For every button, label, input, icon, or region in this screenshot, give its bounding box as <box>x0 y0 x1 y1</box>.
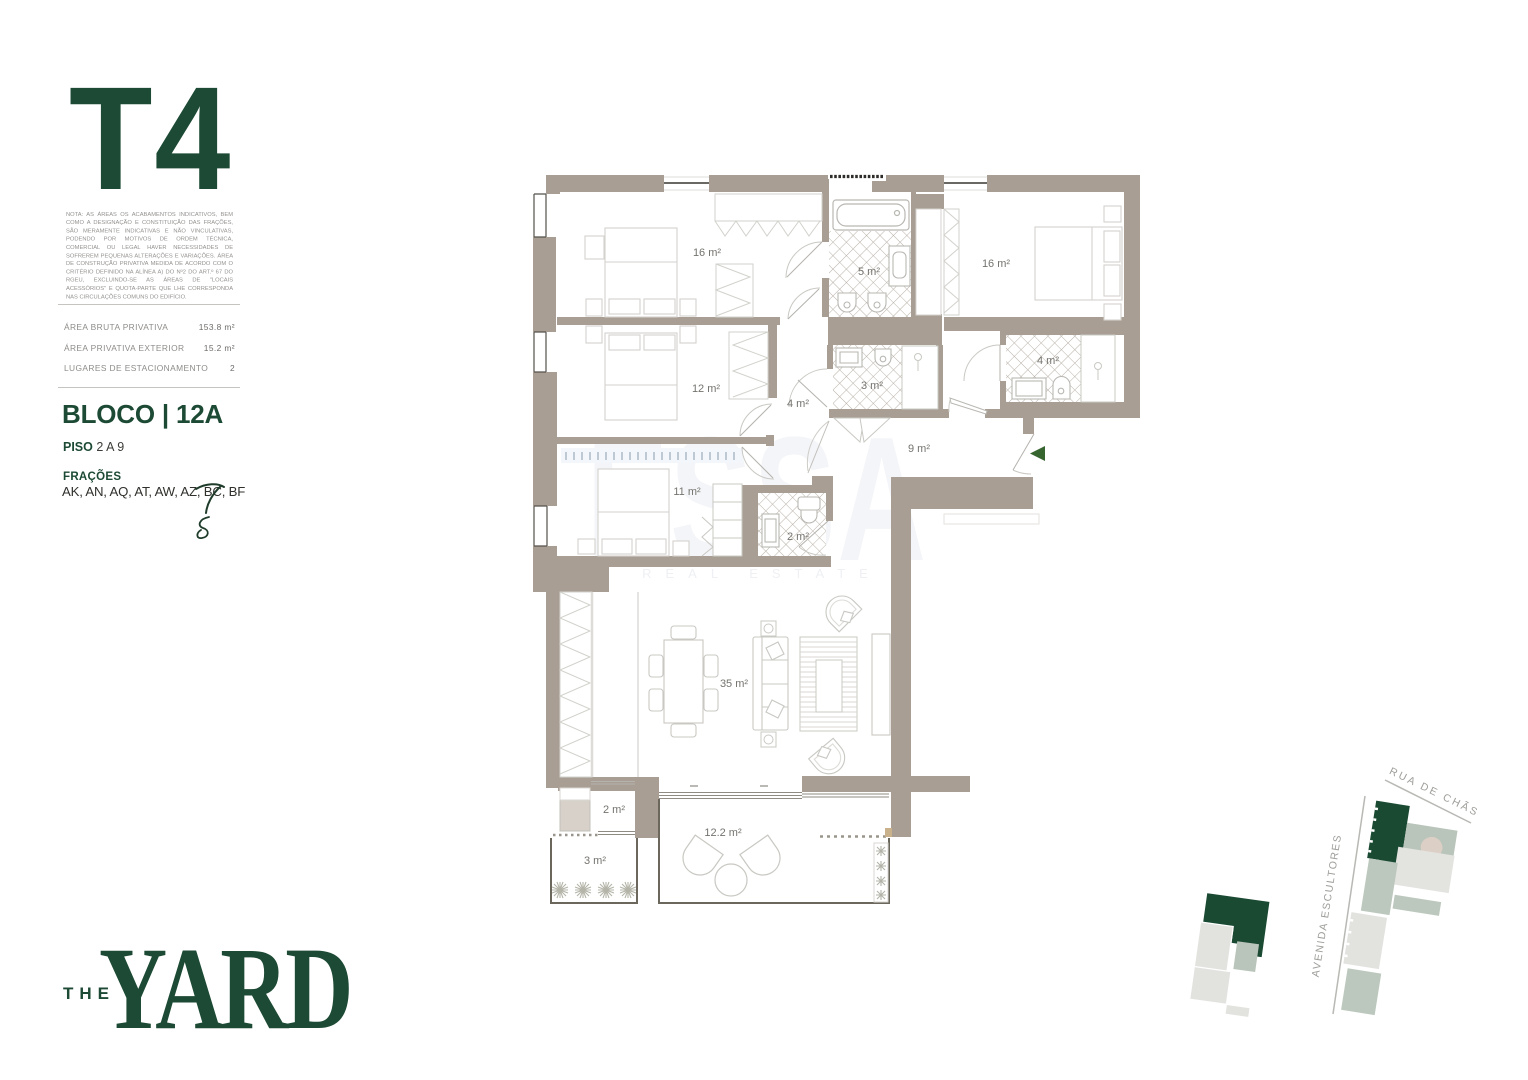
svg-text:2 m²: 2 m² <box>787 531 809 543</box>
svg-text:4 m²: 4 m² <box>787 398 809 410</box>
svg-text:AVENIDA ESCULTORES: AVENIDA ESCULTORES <box>1310 833 1345 978</box>
svg-text:3 m²: 3 m² <box>584 855 606 867</box>
svg-text:16 m²: 16 m² <box>693 247 721 259</box>
svg-text:5 m²: 5 m² <box>858 266 880 278</box>
svg-text:2 m²: 2 m² <box>603 804 625 816</box>
svg-text:16 m²: 16 m² <box>982 258 1010 270</box>
svg-text:3 m²: 3 m² <box>861 380 883 392</box>
svg-text:12.2 m²: 12.2 m² <box>704 827 742 839</box>
svg-text:12 m²: 12 m² <box>692 383 720 395</box>
svg-text:11 m²: 11 m² <box>673 486 701 498</box>
svg-text:4 m²: 4 m² <box>1037 355 1059 367</box>
svg-text:35 m²: 35 m² <box>720 678 748 690</box>
svg-text:9 m²: 9 m² <box>908 443 930 455</box>
svg-text:REAL ESTATE: REAL ESTATE <box>642 566 882 581</box>
